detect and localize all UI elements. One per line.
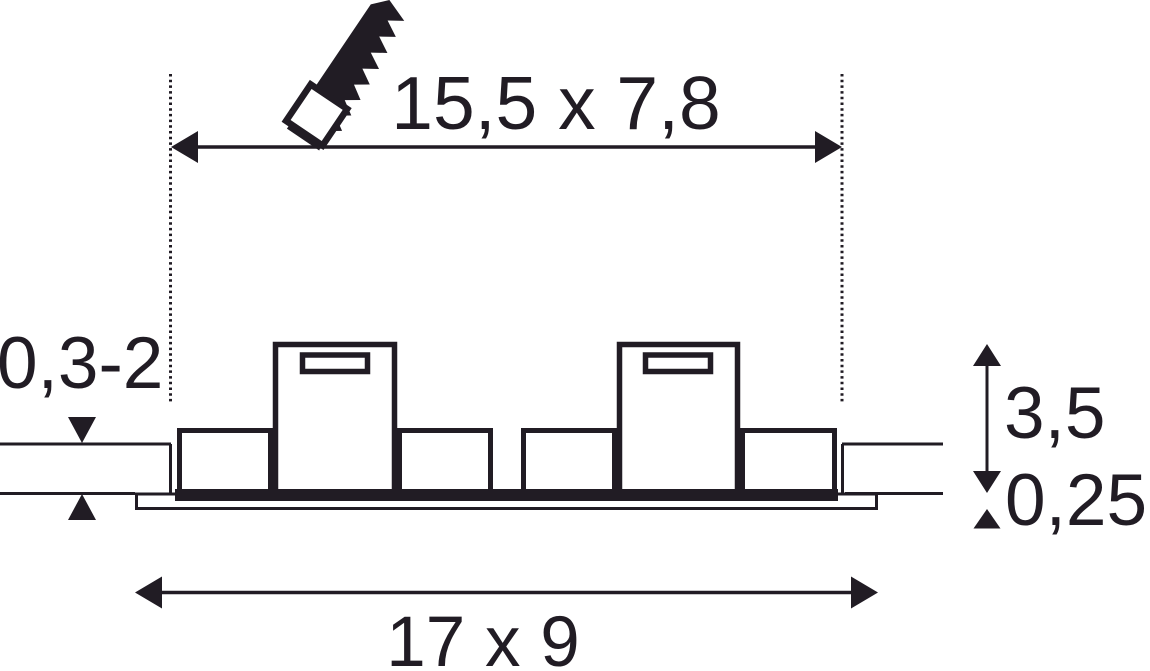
arrowhead-left: [171, 131, 198, 163]
cutout-size-label: 15,5 x 7,8: [391, 61, 720, 145]
recess-height-label: 3,5: [1004, 373, 1105, 454]
arrowhead-up: [68, 494, 96, 520]
cutout-dimension: 15,5 x 7,8: [171, 61, 843, 402]
arrowhead-up: [974, 509, 1001, 529]
ceiling-thickness-dimension: 0,3-2: [0, 323, 163, 520]
arrowhead-up: [973, 344, 1001, 366]
arrowhead-down: [68, 417, 96, 443]
arrowhead-right: [851, 577, 878, 609]
flange-box-2: [400, 431, 491, 493]
installation-drawing: 15,5 x 7,8 0,3-2: [0, 0, 1150, 671]
outer-size-label: 17 x 9: [386, 603, 579, 671]
drawing-canvas: 15,5 x 7,8 0,3-2: [0, 0, 1150, 671]
housing-window-1: [303, 355, 368, 372]
flange-box-1: [180, 431, 271, 493]
outer-size-dimension: 17 x 9: [135, 577, 878, 671]
flange-box-3: [524, 431, 615, 493]
luminaire-section: [137, 345, 877, 509]
housing-window-2: [646, 355, 711, 372]
ceiling-thickness-label: 0,3-2: [0, 323, 163, 404]
fixture-base-band: [175, 489, 838, 501]
arrowhead-left: [135, 577, 162, 609]
arrowhead-right: [815, 131, 842, 163]
flange-box-4: [743, 431, 835, 493]
frame-thickness-label: 0,25: [1005, 460, 1147, 541]
arrowhead-down: [973, 471, 1001, 493]
